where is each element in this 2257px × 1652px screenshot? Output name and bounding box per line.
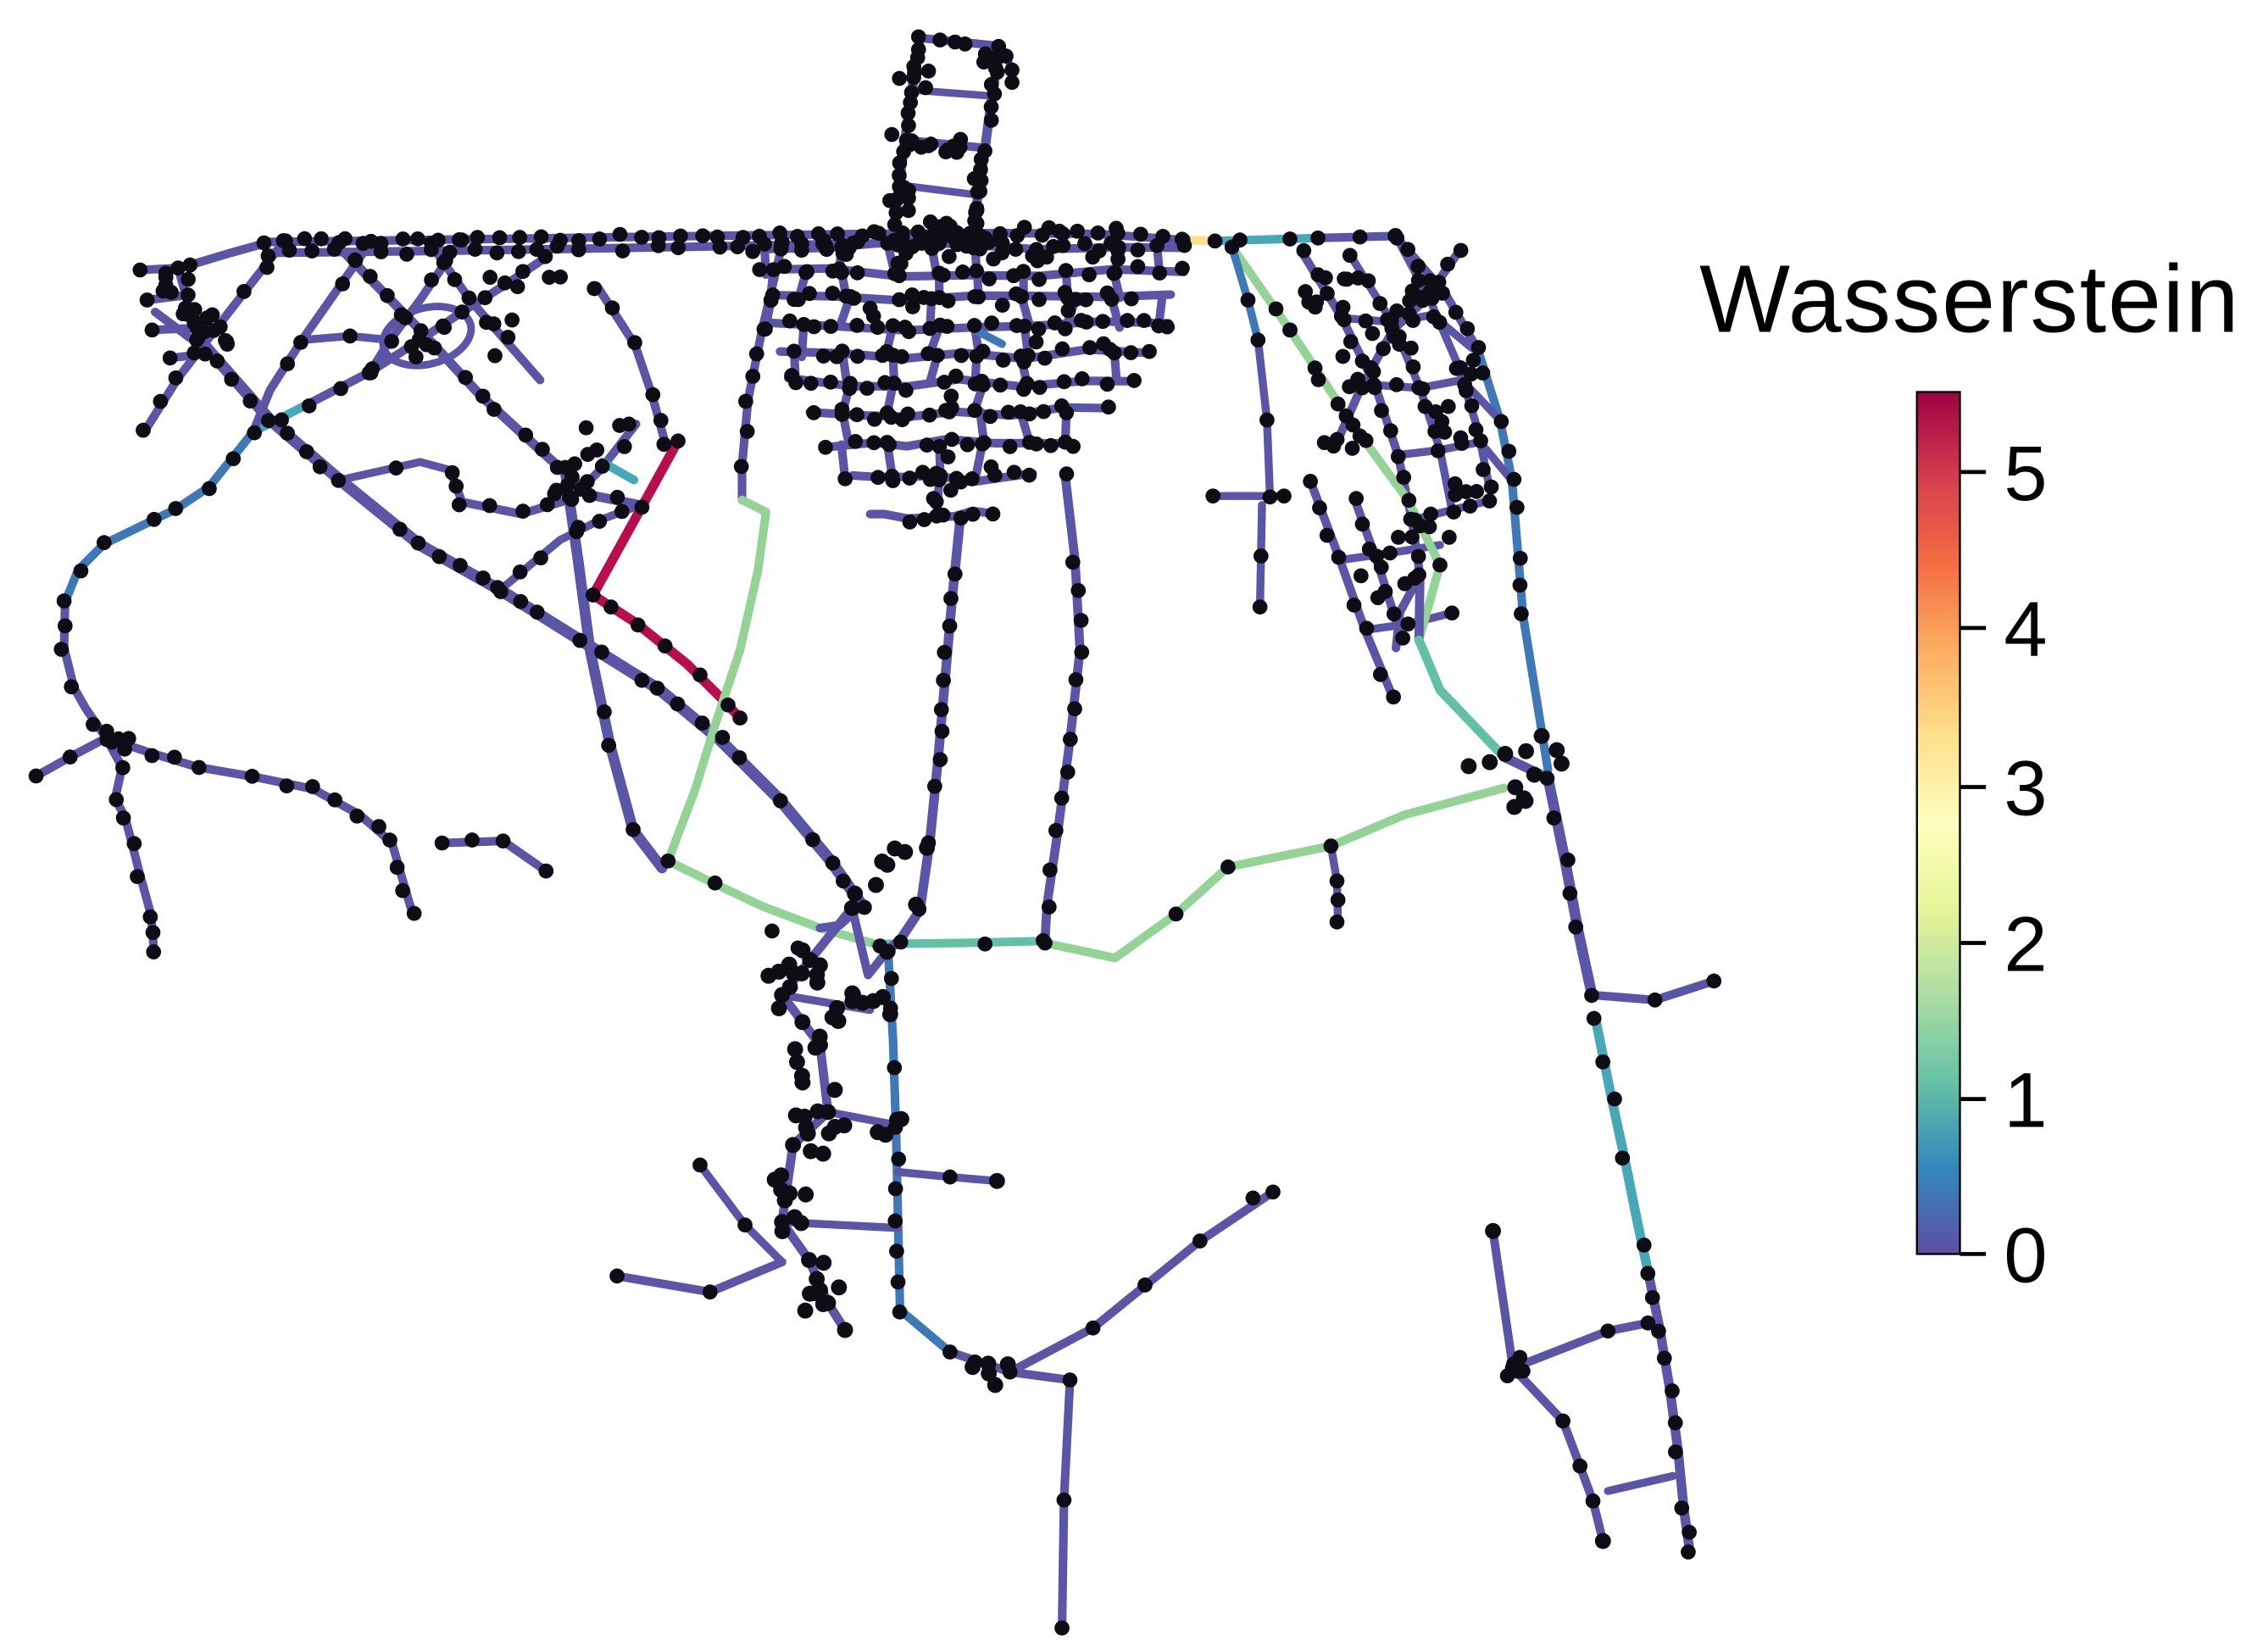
svg-text:5: 5	[2004, 430, 2047, 517]
svg-text:0: 0	[2004, 1211, 2047, 1299]
svg-text:Wasserstein: Wasserstein	[1699, 245, 2240, 353]
svg-text:1: 1	[2004, 1057, 2047, 1144]
svg-text:4: 4	[2004, 586, 2047, 673]
svg-text:2: 2	[2004, 901, 2047, 988]
svg-text:3: 3	[2004, 745, 2047, 832]
